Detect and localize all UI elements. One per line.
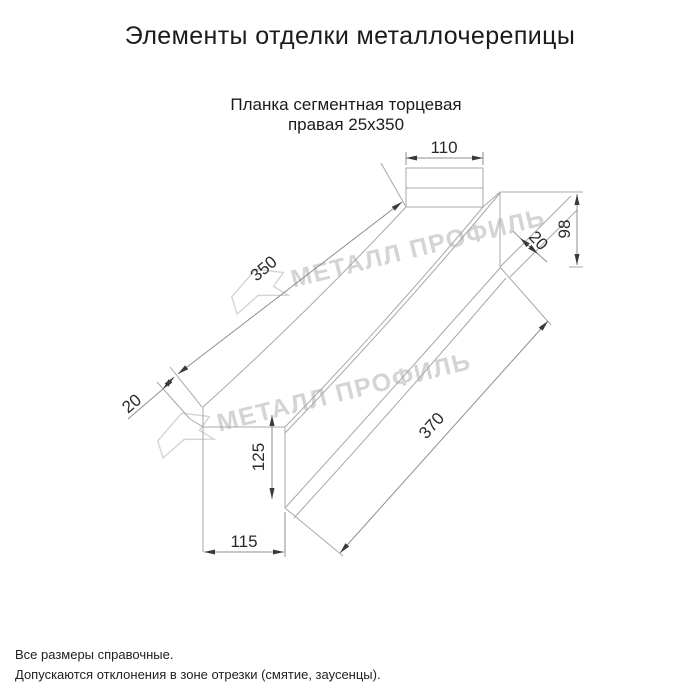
dim-label-bottom-width: 115 [230, 532, 257, 551]
watermark: МЕТАЛЛ ПРОФИЛЬ [227, 198, 550, 314]
dimension-labels: 110 350 20 98 20 125 370 115 [118, 138, 574, 551]
dim-label-side-height: 125 [249, 443, 268, 471]
footer-note-1: Все размеры справочные. [15, 645, 381, 665]
watermark-text: МЕТАЛЛ ПРОФИЛЬ [288, 203, 548, 293]
technical-drawing: МЕТАЛЛ ПРОФИЛЬ МЕТАЛЛ ПРОФИЛЬ [0, 0, 700, 700]
drawing-page: Элементы отделки металлочерепицы Планка … [0, 0, 700, 700]
metall-profil-logo-icon [153, 407, 217, 458]
footer-note-2: Допускаются отклонения в зоне отрезки (с… [15, 665, 381, 685]
dim-label-hem-bottom: 20 [118, 390, 145, 417]
footer-notes: Все размеры справочные. Допускаются откл… [15, 645, 381, 685]
dim-label-top-face-length: 350 [247, 252, 281, 285]
dim-label-top-width: 110 [430, 138, 457, 157]
dim-label-end-height: 98 [555, 220, 574, 239]
